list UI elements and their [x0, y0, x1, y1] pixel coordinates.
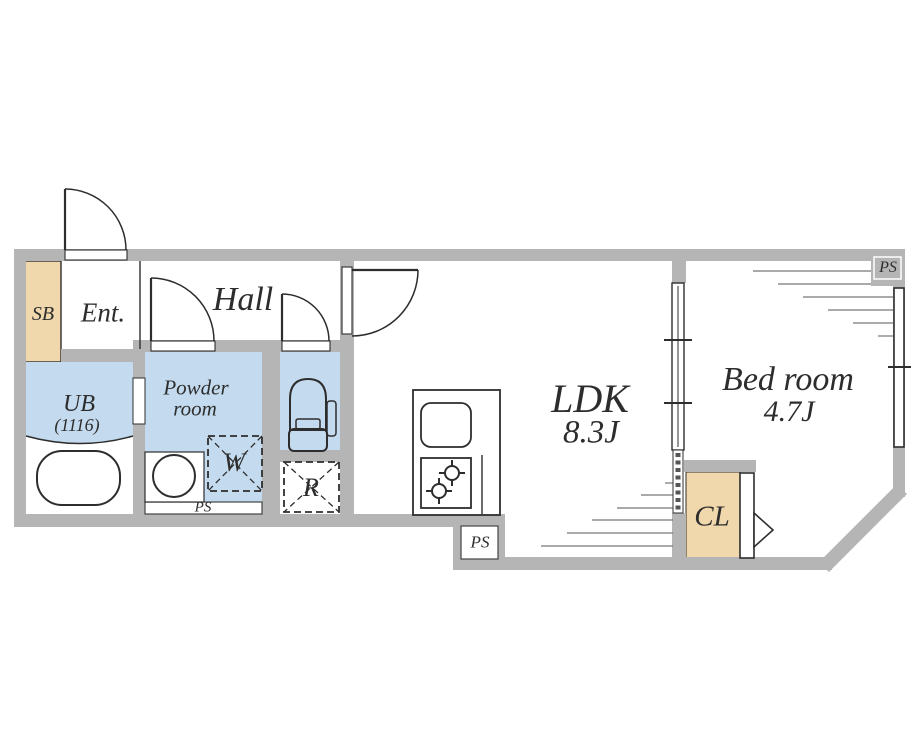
unit-bath-door	[133, 378, 145, 424]
ldk-label: LDK	[551, 379, 629, 419]
floor-plan: SB Ent. Hall UB (1116) Powder room W R P…	[0, 0, 920, 746]
shoe-box-label: SB	[32, 304, 54, 324]
bedroom-size-label: 4.7J	[764, 397, 815, 427]
closet-door	[740, 473, 773, 558]
wall-closet-top	[684, 460, 756, 472]
wall-chamfer	[824, 489, 902, 567]
hall-label: Hall	[213, 283, 273, 317]
toilet-door	[282, 294, 330, 351]
wall-ub-powder-divider	[133, 340, 145, 514]
wall-bottom-left	[14, 514, 455, 527]
powder-room-label: Powder	[163, 378, 228, 399]
bathtub	[37, 451, 120, 505]
ldk-bedroom-sliding-door	[664, 283, 692, 450]
accordion-strip	[673, 450, 683, 513]
powder-room-label-2: room	[173, 399, 217, 420]
wall-left	[14, 249, 26, 526]
wall-entrance-bottom	[61, 349, 133, 362]
wall-bottom-right	[503, 557, 832, 570]
ps-bedroom-label: PS	[879, 260, 897, 276]
wall-ldk-bedroom-stub	[672, 261, 686, 283]
closet-label: CL	[694, 503, 729, 532]
ldk-size-label: 8.3J	[563, 417, 619, 450]
unit-bath-label: UB	[63, 392, 95, 416]
refrigerator-label: R	[303, 475, 319, 501]
wall-top	[14, 249, 905, 261]
entrance-label: Ent.	[81, 300, 125, 327]
closet-door-arrow-icon	[754, 513, 773, 547]
kitchen-counter	[413, 390, 500, 515]
bedroom-label: Bed room	[722, 363, 854, 397]
wall-powder-toilet-divider	[262, 340, 280, 514]
ps-bath-label: PS	[195, 501, 212, 516]
sink-bowl	[153, 455, 195, 497]
wall-ldk-bedroom-lower	[672, 513, 686, 558]
ps-kitchen-label: PS	[471, 534, 490, 551]
kitchen	[413, 390, 500, 515]
washer-label: W	[223, 450, 245, 476]
unit-bath-size-label: (1116)	[54, 416, 99, 434]
bedroom-window	[888, 288, 911, 447]
